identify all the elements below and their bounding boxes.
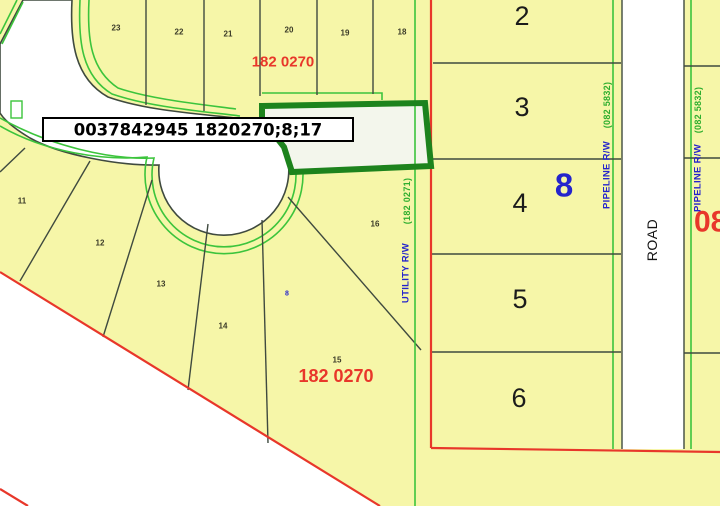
lot-number-14: 14 (219, 322, 228, 331)
lot-number-13: 13 (157, 280, 166, 289)
pipeline-rw-label-right: PIPELINE R/W (693, 144, 704, 212)
lot-number-12: 12 (96, 239, 105, 248)
lot-number-23: 23 (112, 24, 121, 33)
lot-number-18: 18 (398, 28, 407, 37)
map-tip-text: 0037842945 1820270;8;17 (74, 121, 323, 140)
map-canvas[interactable]: 23 22 21 20 19 18 11 12 13 14 15 16 2 3 … (0, 0, 720, 506)
utility-rw-label: UTILITY R/W (401, 243, 412, 303)
map-viewport: 23 22 21 20 19 18 11 12 13 14 15 16 2 3 … (0, 0, 720, 506)
lot-number-15: 15 (333, 356, 342, 365)
plan-number-bottom: 182 0270 (298, 366, 373, 386)
lot-number-11: 11 (18, 197, 27, 206)
lot-number-6: 6 (511, 383, 526, 413)
block-number-8: 8 (555, 167, 573, 204)
small-blue-8: 8 (285, 291, 289, 298)
lot-number-19: 19 (341, 29, 350, 38)
plan-number-top: 182 0270 (252, 54, 315, 71)
road-label: ROAD (644, 219, 660, 261)
lot-number-2: 2 (514, 1, 529, 31)
pipeline-plan-label-right: (082 5832) (693, 87, 703, 134)
lot-number-16: 16 (371, 220, 380, 229)
utility-plan-label: (182 0271) (402, 178, 412, 225)
lot-number-20: 20 (285, 26, 294, 35)
lot-number-5: 5 (512, 284, 527, 314)
lot-number-3: 3 (514, 92, 529, 122)
lot-number-22: 22 (175, 28, 184, 37)
lot-number-21: 21 (224, 30, 233, 39)
lot-number-4: 4 (512, 188, 527, 218)
pipeline-plan-label-left: (082 5832) (602, 82, 612, 129)
pipeline-rw-label-left: PIPELINE R/W (602, 141, 613, 209)
